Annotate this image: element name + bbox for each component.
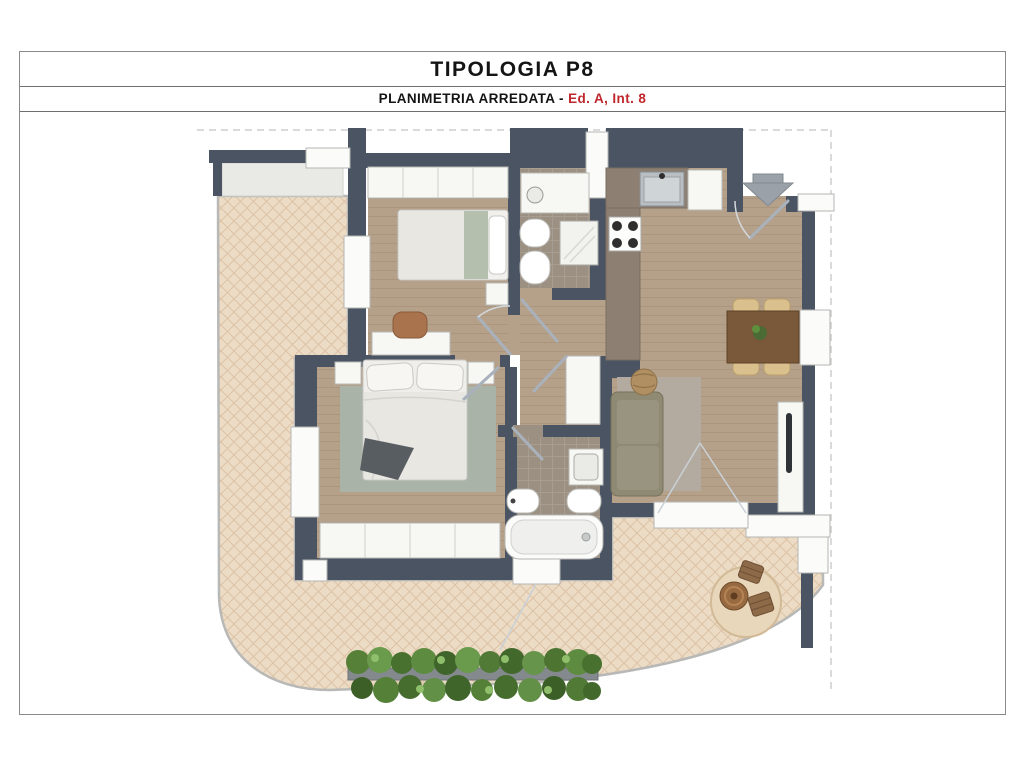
door-gap-bath1: [520, 288, 552, 300]
vanity-basin: [527, 187, 543, 203]
french-door-living: [654, 502, 748, 528]
bidet-bath1: [520, 219, 550, 247]
window-terrace-east: [798, 537, 828, 573]
bidet-faucet: [511, 499, 516, 504]
hedge-planter: [346, 647, 602, 703]
table-plant-leaf: [752, 325, 760, 333]
wall-entry-fin: [727, 128, 743, 212]
tv: [786, 413, 792, 473]
wall-left-stub: [213, 150, 222, 196]
wall-terrace-east-stub: [801, 573, 813, 648]
kitchen-sink-basin: [644, 177, 680, 202]
window-top-left: [306, 148, 350, 168]
toilet-bath1: [520, 251, 550, 284]
bathtub-drain: [582, 533, 590, 541]
washbasin-bowl: [574, 454, 598, 480]
single-bed-blanket: [464, 211, 488, 279]
single-bed-duvet: [399, 211, 465, 279]
nightstand-bedroom1: [486, 283, 508, 305]
nightstand-left: [335, 362, 361, 384]
arrow-bar: [753, 174, 783, 183]
outdoor-table-center: [731, 593, 738, 600]
wall-bedroom1-top: [366, 153, 510, 168]
kitchen-faucet: [659, 173, 665, 179]
door-gap-bedroom1: [508, 315, 520, 355]
window-master-west: [291, 427, 319, 517]
single-bed-pillow: [489, 216, 506, 274]
page: TIPOLOGIA P8 PLANIMETRIA ARREDATA - Ed. …: [0, 0, 1024, 768]
wall-south: [295, 558, 612, 580]
window-master-south: [303, 560, 327, 581]
hall-closet: [566, 356, 600, 424]
floor-plan: [0, 0, 1024, 768]
window-living-se: [746, 515, 830, 537]
nightstand-right: [468, 362, 494, 384]
wall-top-left: [209, 150, 310, 163]
window-bedroom1-west: [344, 236, 370, 308]
bed-pillow-right: [416, 363, 463, 391]
sofa-cushion-1: [617, 400, 659, 444]
bed-pillow-left: [366, 362, 414, 391]
wall-kitchen-top: [606, 128, 727, 168]
sofa-cushion-2: [617, 446, 659, 490]
kitchen-tall-cabinet: [688, 170, 722, 210]
toilet-bath2: [567, 489, 601, 513]
pouf: [631, 369, 657, 395]
window-entry-side: [798, 194, 834, 211]
window-east: [800, 310, 830, 365]
desk-chair: [393, 312, 427, 338]
window-bath2-south: [513, 558, 560, 584]
wall-bath1-top: [510, 128, 588, 168]
